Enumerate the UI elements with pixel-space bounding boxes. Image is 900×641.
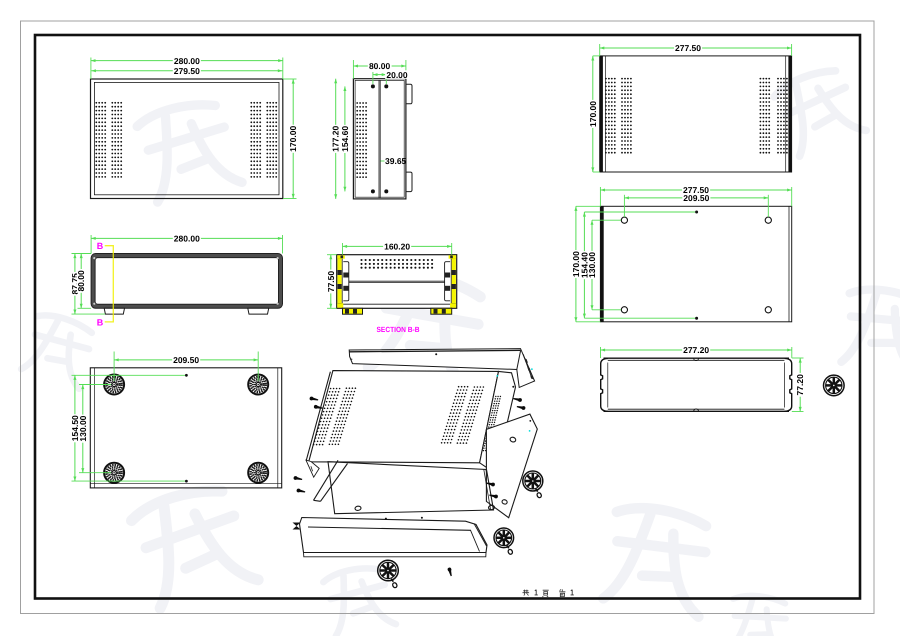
- svg-text:39.65: 39.65: [385, 156, 407, 166]
- svg-text:130.00: 130.00: [78, 415, 88, 441]
- svg-text:20.00: 20.00: [386, 70, 408, 80]
- svg-text:209.50: 209.50: [683, 193, 709, 203]
- svg-text:280.00: 280.00: [174, 234, 200, 244]
- svg-text:77.50: 77.50: [326, 271, 336, 293]
- svg-text:170.00: 170.00: [288, 126, 298, 152]
- svg-text:277.20: 277.20: [683, 345, 709, 355]
- svg-text:154.60: 154.60: [340, 126, 350, 152]
- svg-text:209.50: 209.50: [173, 355, 199, 365]
- svg-text:77.20: 77.20: [795, 374, 805, 396]
- svg-text:277.50: 277.50: [675, 43, 701, 53]
- svg-text:279.50: 279.50: [174, 66, 200, 76]
- svg-text:80.00: 80.00: [76, 270, 86, 292]
- svg-text:B: B: [97, 317, 104, 327]
- svg-text:B: B: [97, 241, 104, 251]
- svg-text:280.00: 280.00: [174, 56, 200, 66]
- svg-text:130.00: 130.00: [587, 252, 597, 278]
- svg-text:160.20: 160.20: [384, 242, 410, 252]
- svg-text:SECTION B-B: SECTION B-B: [377, 325, 421, 334]
- svg-text:170.00: 170.00: [588, 101, 598, 127]
